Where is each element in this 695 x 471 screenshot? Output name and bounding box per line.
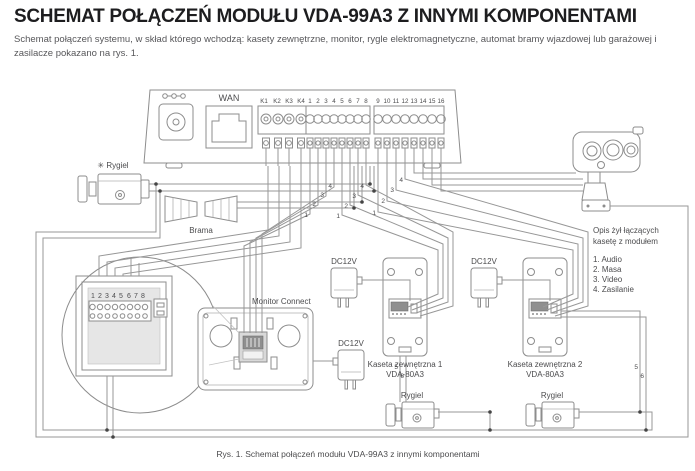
- detail-digit: 4: [112, 293, 116, 300]
- detail-digit: 7: [134, 293, 138, 300]
- wire-number: 4: [328, 183, 332, 190]
- legend: Opis żył łączących kasetę z modułem 1. A…: [593, 226, 659, 294]
- terminal-label: 3: [324, 98, 328, 105]
- wire-camera: [432, 166, 583, 185]
- wire-rygiel-b1: [438, 412, 490, 430]
- rygiel-b1-label: Rygiel: [401, 391, 423, 400]
- camera-bracket: [588, 172, 600, 183]
- terminal-label: K1: [260, 98, 268, 105]
- kaseta1-name: Kaseta zewnętrzna 1: [368, 360, 443, 369]
- dc-adapter-monitor: [333, 350, 364, 389]
- terminal-label: 2: [316, 98, 320, 105]
- wan-label: WAN: [219, 93, 240, 103]
- detail-terminal-strip: [89, 301, 151, 321]
- detail-digit: 1: [91, 293, 95, 300]
- wire-number: 5: [394, 364, 398, 371]
- detail-side-connector: [154, 299, 167, 317]
- kaseta1-model: VDA-80A3: [386, 370, 424, 379]
- wire-number: 3: [320, 192, 324, 199]
- dc12v-label: DC12V: [471, 257, 497, 266]
- wiring-diagram: WAN K1 K2 K3 K4 1 2 3 4 5 6 7 8 9 10 11 …: [0, 0, 695, 471]
- terminal-label: 1: [308, 98, 312, 105]
- wire-number: 2: [381, 198, 385, 205]
- terminal-label: 14: [420, 98, 427, 105]
- terminal-label: 8: [364, 98, 368, 105]
- terminal-label: 10: [384, 98, 391, 105]
- dc12v-label: DC12V: [338, 339, 364, 348]
- detail-digit: 2: [98, 293, 102, 300]
- page: SCHEMAT POŁĄCZEŃ MODUŁU VDA-99A3 Z INNYM…: [0, 0, 695, 471]
- camera: [573, 127, 643, 211]
- mount-clip: [271, 357, 277, 369]
- terminal-label: 4: [332, 98, 336, 105]
- detail-circle: [62, 257, 218, 413]
- wire-number: 4: [399, 177, 403, 184]
- wire-number: 2: [344, 203, 348, 210]
- legend-item: 1. Audio: [593, 255, 622, 264]
- wire-number: 6: [640, 373, 644, 380]
- detail-digit: 3: [105, 293, 109, 300]
- wire-number: 3: [352, 193, 356, 200]
- power-polarity-icon: [163, 94, 186, 99]
- detail-digit: 6: [127, 293, 131, 300]
- kaseta2-name: Kaseta zewnętrzna 2: [508, 360, 583, 369]
- brama-label: Brama: [189, 226, 213, 235]
- legend-item: 3. Video: [593, 275, 623, 284]
- terminal-label: 11: [393, 98, 400, 105]
- terminal-label: 15: [429, 98, 436, 105]
- wire-number: 5: [634, 364, 638, 371]
- wire-number: 1: [336, 213, 340, 220]
- legend-title-2: kasetę z modułem: [593, 237, 658, 246]
- wire-number: 1: [304, 212, 308, 219]
- terminal-label: 7: [356, 98, 360, 105]
- terminal-label: 12: [402, 98, 409, 105]
- wire-number: 2: [312, 201, 316, 208]
- terminal-label: 6: [348, 98, 352, 105]
- terminal-label: 5: [340, 98, 344, 105]
- detail-digit: 5: [119, 293, 123, 300]
- figure-caption: Rys. 1. Schemat połączeń modułu VDA-99A3…: [216, 449, 479, 459]
- legend-item: 2. Masa: [593, 265, 622, 274]
- rygiel-bottom-2: [526, 402, 579, 428]
- rygiel-bottom-1: [386, 402, 439, 428]
- wire-number: 3: [390, 187, 394, 194]
- legend-item: 4. Zasilanie: [593, 285, 634, 294]
- terminal-label: K4: [297, 98, 305, 105]
- wire-number: 4: [360, 183, 364, 190]
- wire-number: 1: [372, 210, 376, 217]
- detail-digit: 8: [141, 293, 145, 300]
- terminal-label: 16: [438, 98, 445, 105]
- wire-number: 6: [400, 373, 404, 380]
- camera-foot: [582, 200, 610, 211]
- terminal-label: 9: [376, 98, 380, 105]
- rygiel-top-label: ✳ Rygiel: [97, 161, 128, 170]
- dc-adapter-kaseta1: [331, 268, 362, 307]
- terminal-label: 13: [411, 98, 418, 105]
- brama-gate: [165, 196, 237, 222]
- dc12v-label: DC12V: [331, 257, 357, 266]
- rygiel-b2-label: Rygiel: [541, 391, 563, 400]
- legend-title-1: Opis żył łączących: [593, 226, 659, 235]
- kaseta2-model: VDA-80A3: [526, 370, 564, 379]
- monitor-connector-block: [239, 332, 267, 362]
- mount-clip: [267, 318, 273, 329]
- terminal-label: K2: [273, 98, 281, 105]
- monitor-label: Monitor Connect: [252, 297, 311, 306]
- dc-adapter-kaseta2: [471, 268, 502, 307]
- terminal-label: K3: [285, 98, 293, 105]
- rygiel-top: [78, 174, 149, 204]
- module-foot: [166, 163, 182, 168]
- kaseta-zewnetrzna-2: [523, 258, 567, 356]
